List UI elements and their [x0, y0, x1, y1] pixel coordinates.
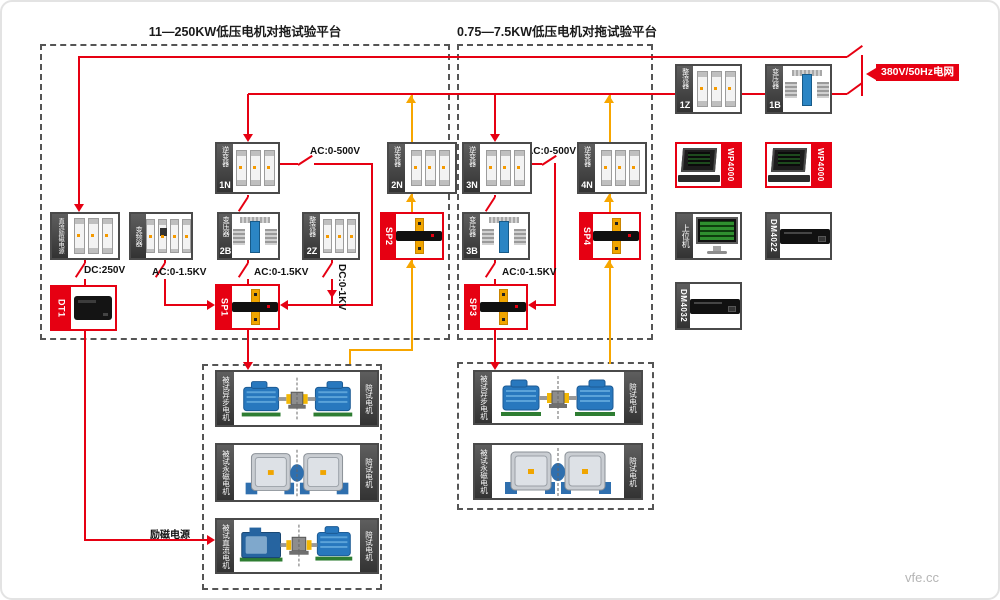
arrowhead [243, 134, 253, 142]
sp4-power-sensor: SP4 [579, 212, 641, 260]
arrowhead [243, 362, 253, 370]
component-id: SP4 [582, 227, 592, 246]
component-id: DT1 [57, 299, 67, 318]
wire-segment [349, 349, 413, 351]
companion-motor-label: 陪试电机 [365, 531, 373, 561]
test-motor-label: 被试异步电机 [222, 376, 230, 421]
component-label-strip: WP4000 [811, 144, 830, 186]
wire-label-dc1kv: DC:0-1KV [336, 264, 347, 310]
component-tag: 上位机 [681, 224, 689, 248]
component-label-strip: SP2 [382, 214, 396, 258]
breaker-icon [320, 214, 358, 258]
motor-pair-row-pm-right: 被试永磁电机 陪试电机 [473, 443, 643, 500]
sp3-power-sensor: SP3 [464, 284, 528, 330]
breaker-icon [480, 144, 530, 192]
wp4000-analyzer-2: WP4000 [765, 142, 832, 188]
power-sensor-icon [480, 286, 526, 328]
wire-segment [84, 539, 209, 541]
test-motor-label: 被试永磁电机 [222, 450, 230, 495]
wire-segment [349, 350, 351, 364]
motor-pair-row-async-left: 被试异步电机 陪试电机 [215, 370, 379, 427]
grid-supply-label: 380V/50Hz电网 [876, 64, 959, 81]
wp4000-analyzer-1: WP4000 [675, 142, 742, 188]
wire-segment [314, 163, 373, 165]
companion-motor-label: 陪试电机 [365, 384, 373, 414]
right-platform-title: 0.75—7.5KW低压电机对拖试验平台 [457, 21, 653, 40]
component-tag: 变压器 [468, 216, 475, 237]
wire-segment [609, 260, 611, 364]
inverter-3n-unit: 逆变器 3N [462, 142, 532, 194]
arrowhead [604, 260, 614, 268]
component-id: SP2 [384, 227, 394, 246]
dt1-dc-sensor: DT1 [50, 285, 117, 331]
component-id: WP4000 [726, 148, 735, 182]
arrowhead [207, 300, 215, 310]
companion-motor-label-strip: 陪试电机 [624, 372, 641, 423]
disconnect-switch-icon [241, 197, 255, 213]
host-computer-icon [693, 214, 740, 258]
wire-label-ac500-left: AC:0-500V [310, 146, 360, 157]
host-computer-unit: 上位机 [675, 212, 742, 260]
power-sensor-icon [396, 214, 442, 258]
inverter-2n-unit: 逆变器 2N [387, 142, 457, 194]
component-id: WP4000 [816, 148, 825, 182]
component-tag: 变频器 [135, 226, 142, 247]
companion-motor-label-strip: 陪试电机 [360, 372, 377, 425]
arrowhead [74, 204, 84, 212]
motor-pair-row-pm-left: 被试永磁电机 陪试电机 [215, 443, 379, 502]
component-id: 4N [581, 181, 593, 190]
component-tag: 逆变器 [468, 146, 475, 167]
companion-motor-label: 陪试电机 [365, 458, 373, 488]
test-motor-label: 被试直流电机 [222, 524, 230, 569]
breaker-icon [233, 144, 278, 192]
wire-segment [832, 93, 847, 95]
motor-pair-icon-dc [234, 520, 360, 572]
wire-segment [554, 163, 556, 306]
inverter-1n-unit: 逆变器 1N [215, 142, 280, 194]
component-id: SP3 [468, 298, 478, 317]
wire-segment [78, 56, 80, 205]
analyzer-icon [767, 144, 811, 186]
component-label-strip: 逆变器 2N [389, 144, 405, 192]
component-label-strip: 变频器 [131, 214, 146, 258]
motor-pair-icon-pm [492, 445, 624, 498]
motor-pair-icon-async [492, 372, 624, 423]
component-id: DM4032 [679, 289, 688, 322]
component-label-strip: 逆变器 3N [464, 144, 480, 192]
component-tag: 变压器 [222, 216, 229, 237]
component-id: 1B [769, 101, 781, 110]
component-label-strip: 整流器 2Z [304, 214, 320, 258]
disconnect-switch-icon [241, 263, 255, 279]
inverter-4n-unit: 逆变器 4N [577, 142, 647, 194]
component-label-strip: 逆变器 1N [217, 144, 233, 192]
arrowhead [528, 300, 536, 310]
test-motor-label-strip: 被试永磁电机 [217, 445, 234, 500]
diagram-canvas: 11—250KW低压电机对拖试验平台 0.75—7.5KW低压电机对拖试验平台 [0, 0, 1000, 600]
motor-pair-icon-async [234, 372, 360, 425]
wire-segment [84, 331, 86, 541]
breaker-icon [595, 144, 645, 192]
transformer-2b-unit: 变压器 2B [217, 212, 280, 260]
component-label-strip: 变压器 3B [464, 214, 480, 258]
arrowhead [490, 362, 500, 370]
arrowhead [406, 95, 416, 103]
component-id: 3N [466, 181, 478, 190]
wire-segment [536, 304, 556, 306]
dc-sensor-icon [71, 287, 115, 329]
grid-bus-line [861, 55, 863, 96]
watermark: vfe.cc [905, 570, 939, 585]
companion-motor-label: 陪试电机 [629, 457, 637, 487]
rectifier-2z-unit: 整流器 2Z [302, 212, 360, 260]
breaker-icon [693, 66, 740, 112]
test-motor-label: 被试永磁电机 [480, 449, 488, 494]
wire-label-ac15-b3: AC:0-1.5KV [502, 267, 556, 278]
wire-label-ac15-b2: AC:0-1.5KV [254, 267, 308, 278]
test-motor-label-strip: 被试异步电机 [475, 372, 492, 423]
transformer-3b-unit: 变压器 3B [462, 212, 530, 260]
arrowhead [490, 134, 500, 142]
test-motor-label: 被试异步电机 [480, 375, 488, 420]
wire-segment [247, 94, 249, 135]
dm4032-meter-unit: DM4032 [675, 282, 742, 330]
component-tag: 整流器 [308, 216, 315, 237]
component-id: 3B [466, 247, 478, 256]
component-label-strip: SP4 [581, 214, 593, 258]
wire-label-ac15-vfd: AC:0-1.5KV [152, 267, 206, 278]
motor-pair-row-dc-left: 被试直流电机 陪试电机 [215, 518, 379, 574]
sp1-power-sensor: SP1 [215, 284, 280, 330]
motor-pair-icon-pm [234, 445, 360, 500]
rack-meter-icon [780, 214, 830, 258]
component-tag: 逆变器 [393, 146, 400, 167]
wire-segment [742, 93, 765, 95]
component-label-strip: WP4000 [721, 144, 740, 186]
arrowhead [207, 535, 215, 545]
disconnect-switch-icon [488, 263, 502, 279]
component-label-strip: SP1 [217, 286, 232, 328]
rectifier-1z-unit: 整流器 1Z [675, 64, 742, 114]
breaker-icon [405, 144, 455, 192]
component-tag: 逆变器 [221, 146, 228, 167]
transformer-1b-unit: 变压器 1B [765, 64, 832, 114]
power-sensor-icon [232, 286, 278, 328]
component-label-strip: DT1 [52, 287, 71, 329]
disconnect-switch-icon [298, 157, 314, 171]
component-tag: 逆变器 [583, 146, 590, 167]
power-sensor-icon [593, 214, 639, 258]
component-id: 2N [391, 181, 403, 190]
vfd-unit: 变频器 [129, 212, 193, 260]
dc-excitation-supply-unit: 直流励磁电源 [50, 212, 120, 260]
arrowhead [604, 194, 614, 202]
component-label-strip: 上位机 [677, 214, 693, 258]
arrowhead [604, 95, 614, 103]
dm4022-meter-unit: DM4022 [765, 212, 832, 260]
vfd-icon [146, 214, 191, 258]
disconnect-switch-icon [488, 197, 502, 213]
motor-pair-row-async-right: 被试异步电机 陪试电机 [473, 370, 643, 425]
transformer-icon [232, 214, 278, 258]
component-label-strip: 逆变器 4N [579, 144, 595, 192]
wire-segment [494, 330, 496, 363]
companion-motor-label-strip: 陪试电机 [360, 520, 377, 572]
component-tag: 整流器 [681, 68, 688, 89]
wire-label-excitation: 励磁电源 [150, 526, 190, 541]
component-label-strip: DM4032 [677, 284, 690, 328]
breaker-icon [68, 214, 118, 258]
arrowhead [406, 260, 416, 268]
wire-label-dc250: DC:250V [84, 265, 125, 276]
component-label-strip: 变压器 2B [219, 214, 232, 258]
wire-label-ac500-right: AC:0-500V [526, 146, 576, 157]
companion-motor-label-strip: 陪试电机 [360, 445, 377, 500]
component-id: 1Z [680, 101, 691, 110]
component-id: SP1 [220, 298, 230, 317]
component-id: 2B [220, 247, 232, 256]
component-label-strip: 整流器 1Z [677, 66, 693, 112]
companion-motor-label: 陪试电机 [629, 383, 637, 413]
analyzer-icon [677, 144, 721, 186]
component-id: 1N [219, 181, 231, 190]
arrowhead [866, 68, 876, 80]
transformer-icon [480, 214, 528, 258]
test-motor-label-strip: 被试永磁电机 [475, 445, 492, 498]
rack-meter-icon [690, 284, 740, 328]
wire-segment [371, 163, 373, 306]
wire-segment [494, 94, 496, 135]
wire-segment [411, 260, 413, 350]
component-tag: 直流励磁电源 [57, 218, 63, 254]
arrowhead [280, 300, 288, 310]
component-label-strip: 变压器 1B [767, 66, 783, 112]
transformer-icon [783, 66, 830, 112]
arrowhead [406, 194, 416, 202]
component-label-strip: DM4022 [767, 214, 780, 258]
component-tag: 变压器 [771, 68, 778, 89]
component-id: 2Z [307, 247, 318, 256]
wire-segment [165, 304, 209, 306]
sp2-power-sensor: SP2 [380, 212, 444, 260]
test-motor-label-strip: 被试异步电机 [217, 372, 234, 425]
test-motor-label-strip: 被试直流电机 [217, 520, 234, 572]
wire-segment [247, 330, 249, 364]
companion-motor-label-strip: 陪试电机 [624, 445, 641, 498]
wire-segment [79, 56, 847, 58]
left-platform-title: 11—250KW低压电机对拖试验平台 [40, 21, 450, 40]
component-id: DM4022 [769, 219, 778, 252]
component-label-strip: 直流励磁电源 [52, 214, 68, 258]
component-label-strip: SP3 [466, 286, 480, 328]
